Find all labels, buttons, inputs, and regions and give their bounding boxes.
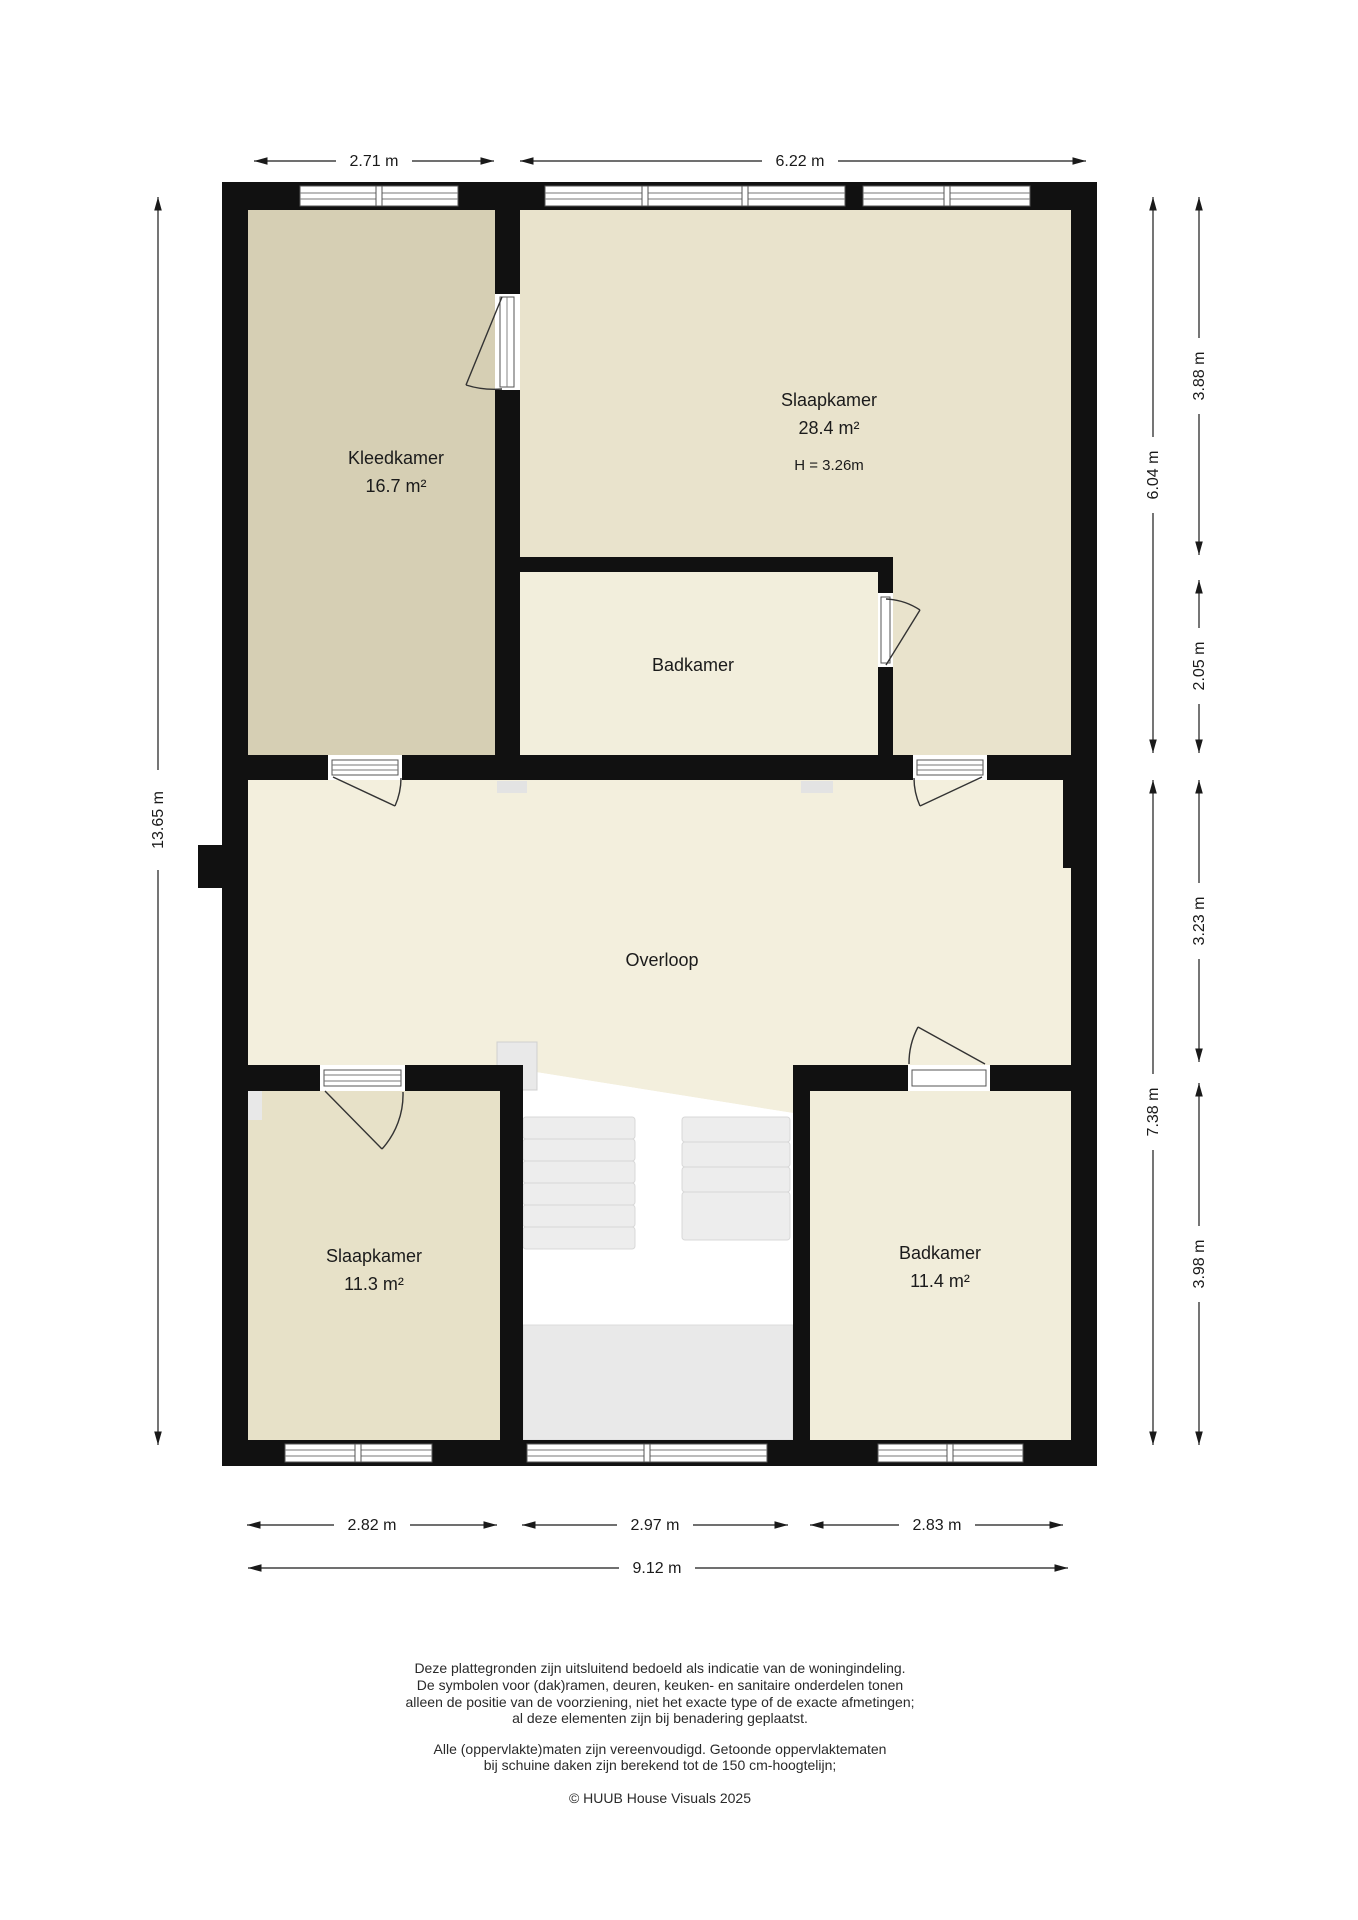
room-label-badkamer-bottom: Badkamer	[899, 1243, 981, 1263]
dim-label: 2.97 m	[631, 1517, 680, 1534]
dim-label: 2.83 m	[913, 1517, 962, 1534]
dim-bottom-297: 2.97 m	[522, 1517, 788, 1534]
room-label-slaapkamer-top: Slaapkamer	[781, 390, 877, 410]
floor-plan: 2.71 m 6.22 m 13.65 m 6.04 m 7.38 m	[0, 0, 1358, 1920]
room-area-badkamer-bottom: 11.4 m²	[910, 1271, 970, 1291]
dim-label: 3.98 m	[1191, 1240, 1208, 1289]
dim-bottom-912: 9.12 m	[248, 1560, 1068, 1577]
wall-badkamer-bottom-west	[793, 1065, 810, 1440]
floor-plan-page: 2.71 m 6.22 m 13.65 m 6.04 m 7.38 m	[0, 0, 1358, 1920]
wall-left-stub	[198, 845, 222, 888]
wall-kleedkamer-divider	[495, 210, 520, 755]
footer-line: al deze elementen zijn bij benadering ge…	[512, 1710, 808, 1726]
dim-right-738: 7.38 m	[1145, 780, 1162, 1445]
stair-flight-left	[523, 1117, 635, 1249]
dim-label: 13.65 m	[150, 791, 167, 849]
room-overloop-floor	[248, 780, 1071, 1113]
room-label-slaapkamer-bottom: Slaapkamer	[326, 1246, 422, 1266]
wall-stub-a	[497, 781, 527, 793]
wall-slaapkamer-bottom-east	[500, 1065, 523, 1440]
room-label-kleedkamer: Kleedkamer	[348, 448, 444, 468]
dim-right-604: 6.04 m	[1145, 197, 1162, 753]
dim-label: 3.23 m	[1191, 897, 1208, 946]
room-area-slaapkamer-bottom: 11.3 m²	[344, 1274, 404, 1294]
room-height-slaapkamer-top: H = 3.26m	[794, 457, 864, 474]
dim-label: 7.38 m	[1145, 1088, 1162, 1137]
wall-outer-right	[1071, 182, 1097, 1466]
window-top-2	[545, 186, 845, 206]
window-top-3	[863, 186, 1030, 206]
room-area-kleedkamer: 16.7 m²	[365, 476, 426, 496]
room-label-badkamer-top: Badkamer	[652, 655, 734, 675]
room-badkamer-bottom-floor	[810, 1091, 1071, 1440]
dim-label: 6.04 m	[1145, 451, 1162, 500]
dim-right-388: 3.88 m	[1191, 197, 1208, 555]
dim-label: 3.88 m	[1191, 352, 1208, 401]
window-top-1	[300, 186, 458, 206]
window-bottom-1	[285, 1444, 432, 1462]
dim-label: 6.22 m	[776, 153, 825, 170]
dim-right-205: 2.05 m	[1191, 580, 1208, 753]
dim-top-622: 6.22 m	[520, 153, 1086, 170]
footer-line: bij schuine daken zijn berekend tot de 1…	[484, 1757, 837, 1773]
footer-copyright: © HUUB House Visuals 2025	[569, 1790, 751, 1806]
dim-left-1365: 13.65 m	[150, 197, 167, 1445]
dim-right-398: 3.98 m	[1191, 1083, 1208, 1445]
footer-line: alleen de positie van de voorziening, ni…	[405, 1694, 914, 1710]
dim-bottom-283: 2.83 m	[810, 1517, 1063, 1534]
stair-flight-right	[682, 1117, 790, 1240]
footer-line: Alle (oppervlakte)maten zijn vereenvoudi…	[434, 1741, 887, 1757]
footer: Deze plattegronden zijn uitsluitend bedo…	[405, 1660, 914, 1806]
dim-label: 2.05 m	[1191, 642, 1208, 691]
wall-outer-left	[222, 182, 248, 1466]
dim-right-323: 3.23 m	[1191, 780, 1208, 1062]
dim-label: 2.82 m	[348, 1517, 397, 1534]
wall-stub-b	[801, 781, 833, 793]
dim-label: 9.12 m	[633, 1560, 682, 1577]
footer-line: Deze plattegronden zijn uitsluitend bedo…	[414, 1660, 905, 1676]
wall-badkamer-top-north	[520, 557, 893, 572]
dim-bottom-282: 2.82 m	[247, 1517, 497, 1534]
stair-landing	[523, 1325, 793, 1440]
dim-label: 2.71 m	[350, 153, 399, 170]
dim-top-271: 2.71 m	[254, 153, 494, 170]
window-bottom-3	[878, 1444, 1023, 1462]
room-area-slaapkamer-top: 28.4 m²	[798, 418, 859, 438]
footer-line: De symbolen voor (dak)ramen, deuren, keu…	[417, 1677, 903, 1693]
room-label-overloop: Overloop	[625, 950, 698, 970]
window-bottom-2	[527, 1444, 767, 1462]
